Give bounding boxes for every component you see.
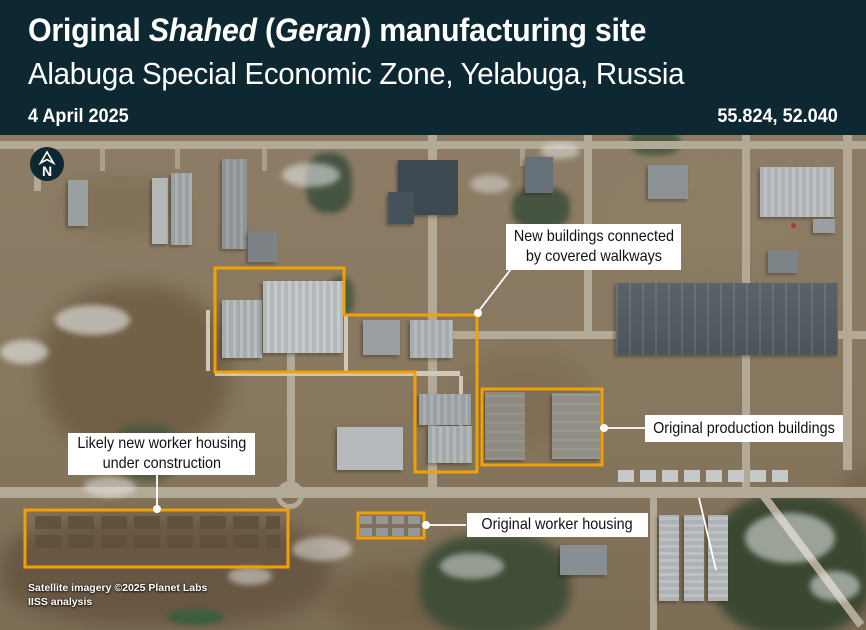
date-label: 4 April 2025 [28, 106, 134, 128]
building [485, 392, 525, 460]
building [684, 515, 704, 601]
subtitle: Alabuga Special Economic Zone, Yelabuga,… [28, 56, 719, 92]
snow-patch [470, 175, 510, 193]
building [68, 180, 88, 226]
building-row [360, 516, 422, 524]
snow-patch [55, 305, 130, 335]
road [843, 135, 852, 470]
label-production-buildings: Original production buildings [645, 415, 843, 442]
building [428, 426, 472, 463]
foundation-row [35, 516, 280, 529]
leader-line-new-buildings [478, 269, 511, 312]
building [263, 281, 343, 353]
building [616, 283, 838, 355]
snow-patch [282, 163, 340, 187]
credits: Satellite imagery ©2025 Planet Labs IISS… [28, 581, 207, 609]
label-new-worker-housing: Likely new worker housing under construc… [68, 433, 255, 475]
snow-patch [0, 340, 48, 364]
page-title: Original Shahed (Geran) manufacturing si… [28, 12, 679, 49]
forest-patch [168, 609, 223, 625]
walkway [215, 371, 460, 376]
leader-dot-production-buildings [600, 424, 608, 432]
roundabout [276, 481, 304, 509]
building [560, 545, 607, 575]
north-letter: N [42, 163, 52, 179]
road [262, 141, 267, 171]
building [708, 515, 728, 601]
label-worker-housing: Original worker housing [467, 513, 648, 537]
road [650, 497, 657, 630]
building [525, 157, 553, 193]
building [648, 165, 688, 199]
title-alt-name: Geran [275, 12, 361, 48]
snow-patch [292, 537, 352, 561]
leader-dot-worker-housing [422, 521, 430, 529]
building [659, 515, 679, 601]
building [171, 173, 192, 245]
title-aircraft-name: Shahed [149, 12, 257, 48]
satellite-map: New buildings connected by covered walkw… [0, 135, 866, 630]
credit-imagery: Satellite imagery ©2025 Planet Labs [28, 581, 207, 595]
label-worker-housing-text: Original worker housing [482, 515, 633, 535]
north-arrow: N [30, 147, 64, 181]
snow-patch [810, 571, 860, 601]
road [175, 141, 180, 169]
foundation-row [35, 535, 280, 548]
walkway [206, 310, 210, 371]
building [222, 159, 247, 249]
infographic: Original Shahed (Geran) manufacturing si… [0, 0, 866, 630]
leader-dot-new-worker-housing [153, 505, 161, 513]
label-new-buildings-line2: by covered walkways [513, 247, 673, 267]
building [152, 178, 168, 244]
snow-patch [228, 567, 272, 585]
leader-dot-new-buildings [474, 309, 482, 317]
snow-patch [440, 553, 504, 579]
building [419, 394, 471, 425]
building [388, 192, 414, 224]
building [813, 219, 835, 233]
forest-patch [512, 187, 570, 229]
title-suffix: ) manufacturing site [361, 12, 646, 48]
road [287, 338, 295, 495]
label-new-buildings-line1: New buildings connected [513, 227, 673, 247]
building [222, 300, 262, 358]
snow-patch [84, 477, 136, 497]
building [363, 320, 400, 355]
credit-analysis: IISS analysis [28, 595, 207, 609]
building-row [360, 528, 422, 536]
road [100, 141, 105, 171]
label-new-worker-housing-line1: Likely new worker housing [77, 434, 246, 454]
building [768, 250, 798, 273]
snow-patch [745, 513, 835, 563]
label-new-buildings: New buildings connected by covered walkw… [506, 224, 681, 270]
building-row [618, 470, 794, 482]
label-production-buildings-text: Original production buildings [653, 419, 835, 439]
building [760, 167, 834, 217]
building [552, 393, 600, 459]
meta-row: 4 April 2025 55.824, 52.040 [28, 106, 838, 128]
label-new-worker-housing-line2: under construction [77, 454, 246, 474]
walkway [344, 315, 348, 371]
building [410, 320, 453, 358]
coordinates-label: 55.824, 52.040 [711, 106, 838, 128]
title-prefix: Original [28, 12, 149, 48]
title-paren: ( [257, 12, 275, 48]
crane [791, 223, 796, 228]
header: Original Shahed (Geran) manufacturing si… [0, 0, 866, 135]
building [337, 427, 403, 470]
building [248, 231, 277, 262]
forest-patch [420, 535, 570, 630]
